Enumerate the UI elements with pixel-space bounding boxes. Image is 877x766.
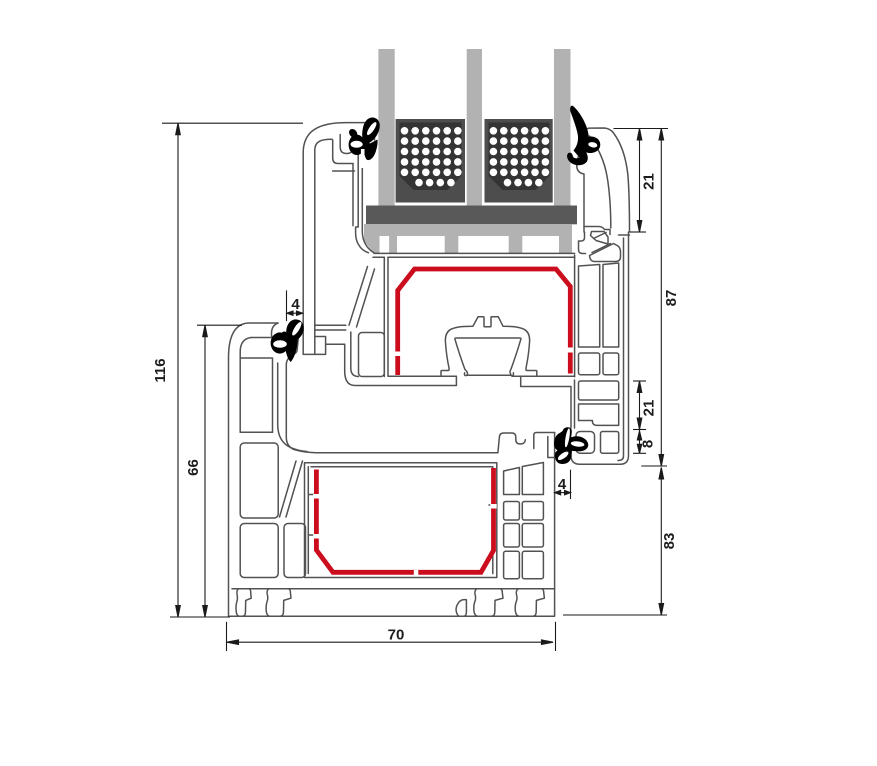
svg-text:83: 83 [661, 533, 678, 550]
svg-text:8: 8 [640, 440, 657, 448]
svg-text:21: 21 [641, 173, 658, 190]
svg-text:70: 70 [388, 627, 405, 644]
svg-text:21: 21 [641, 400, 658, 417]
svg-text:4: 4 [291, 296, 300, 313]
svg-text:66: 66 [185, 459, 202, 476]
svg-text:87: 87 [663, 290, 680, 307]
svg-text:4: 4 [558, 476, 567, 493]
svg-text:116: 116 [152, 358, 169, 382]
